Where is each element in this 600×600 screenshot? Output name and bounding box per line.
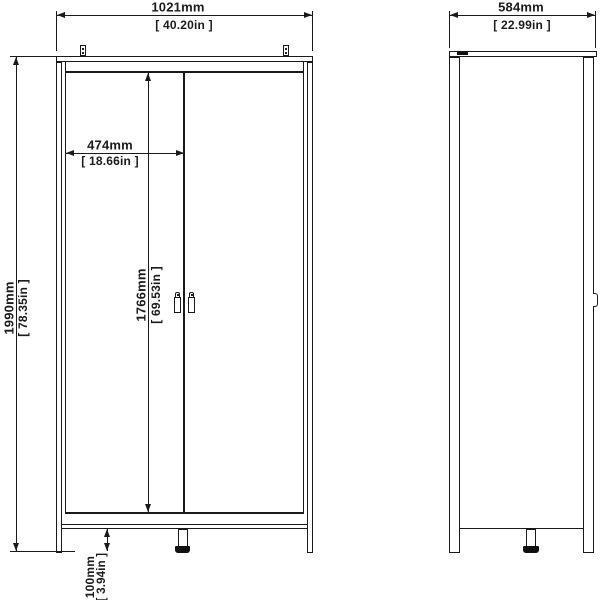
dim-door-height-mm-label: 1766mm — [134, 268, 149, 321]
arrow-up-icon — [145, 73, 151, 81]
dim-depth-line — [450, 15, 595, 16]
dim-overall-depth-in-label: [ 22.99in ] — [493, 18, 551, 32]
dim-overall-depth-mm-label: 584mm — [498, 0, 544, 15]
dim-width-ext-right — [312, 11, 313, 51]
dim-overall-width-in-label: [ 40.20in ] — [155, 18, 213, 32]
dim-door-width-mm-label: 474mm — [87, 138, 133, 153]
arrow-up-icon — [104, 529, 110, 537]
arrow-left-icon — [66, 150, 74, 156]
arrow-left-icon — [450, 12, 458, 18]
arrow-down-icon — [13, 543, 19, 551]
dimension-annotations: 1021mm [ 40.20in ] 584mm [ 22.99in ] 199… — [0, 0, 600, 600]
dim-overall-width-mm-label: 1021mm — [151, 0, 204, 15]
dim-width-line — [57, 15, 312, 16]
dim-foot-height-mm-label: 100mm — [83, 556, 97, 598]
dim-foot-height-in-label: [ 3.94in ] — [96, 553, 108, 600]
arrow-right-icon — [304, 12, 312, 18]
technical-drawing-canvas: 1021mm [ 40.20in ] 584mm [ 22.99in ] 199… — [0, 0, 600, 600]
dim-door-width-in-label: [ 18.66in ] — [81, 154, 139, 168]
arrow-right-icon — [176, 150, 184, 156]
dim-height-ext-bottom — [10, 551, 75, 552]
arrow-down-icon — [104, 543, 110, 551]
dim-overall-height-in-label: [ 78.35in ] — [16, 279, 30, 337]
dim-overall-height-mm-label: 1990mm — [2, 281, 17, 334]
arrow-down-icon — [145, 504, 151, 512]
arrow-left-icon — [57, 12, 65, 18]
arrow-up-icon — [13, 57, 19, 65]
dim-depth-ext-right — [595, 11, 596, 48]
arrow-right-icon — [587, 12, 595, 18]
dim-door-height-in-label: [ 69.53in ] — [149, 266, 163, 324]
